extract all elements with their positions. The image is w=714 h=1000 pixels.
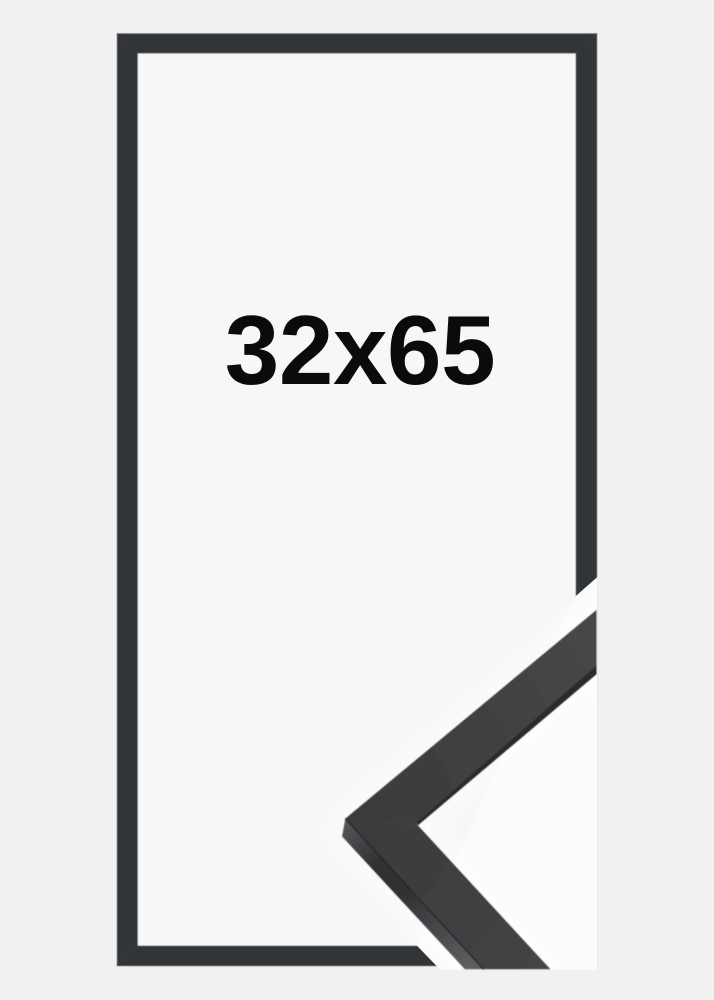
svg-text:32x65: 32x65 bbox=[225, 295, 496, 405]
